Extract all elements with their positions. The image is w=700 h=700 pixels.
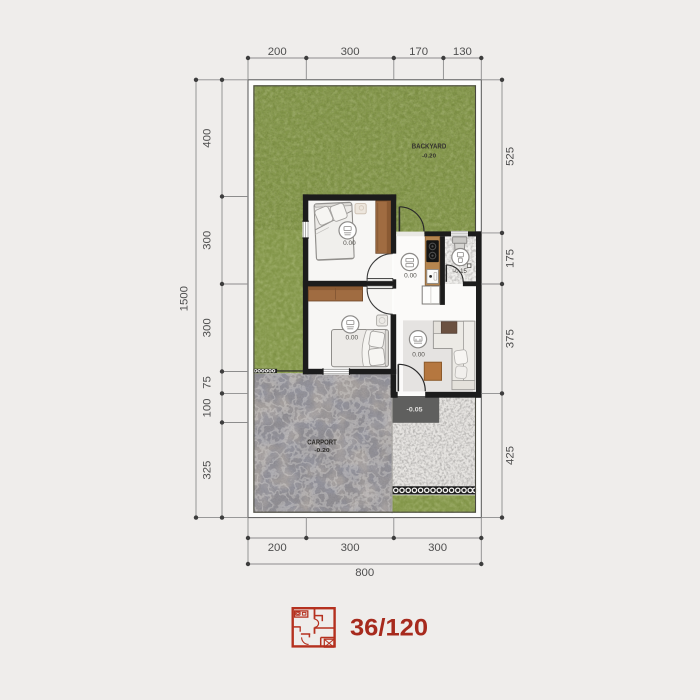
svg-text:0.00: 0.00 (343, 240, 356, 247)
svg-text:200: 200 (268, 542, 287, 554)
svg-text:36/120: 36/120 (350, 614, 428, 641)
svg-text:100: 100 (202, 398, 214, 417)
svg-text:300: 300 (341, 542, 360, 554)
svg-text:300: 300 (202, 318, 214, 337)
svg-text:130: 130 (453, 46, 472, 58)
svg-text:175: 175 (505, 249, 517, 268)
svg-text:325: 325 (202, 461, 214, 480)
svg-text:-0.20: -0.20 (314, 448, 330, 454)
svg-text:300: 300 (341, 46, 360, 58)
svg-text:0.00: 0.00 (412, 351, 425, 358)
svg-text:525: 525 (505, 147, 517, 166)
svg-text:170: 170 (409, 46, 428, 58)
svg-text:400: 400 (202, 129, 214, 148)
svg-text:300: 300 (428, 542, 447, 554)
svg-text:375: 375 (505, 329, 517, 348)
svg-text:-0.20: -0.20 (422, 153, 437, 159)
svg-text:75: 75 (202, 376, 214, 389)
svg-text:200: 200 (268, 46, 287, 58)
svg-text:425: 425 (505, 446, 517, 465)
svg-text:0.00: 0.00 (346, 334, 359, 341)
svg-text:CARPORT: CARPORT (307, 438, 337, 447)
svg-text:800: 800 (355, 567, 374, 579)
svg-text:-0.05: -0.05 (407, 407, 424, 414)
svg-text:0.00: 0.00 (404, 273, 417, 280)
svg-text:BACKYARD: BACKYARD (412, 141, 447, 150)
svg-text:300: 300 (202, 231, 214, 250)
svg-text:1500: 1500 (179, 286, 191, 311)
svg-text:-0.15: -0.15 (453, 269, 467, 275)
